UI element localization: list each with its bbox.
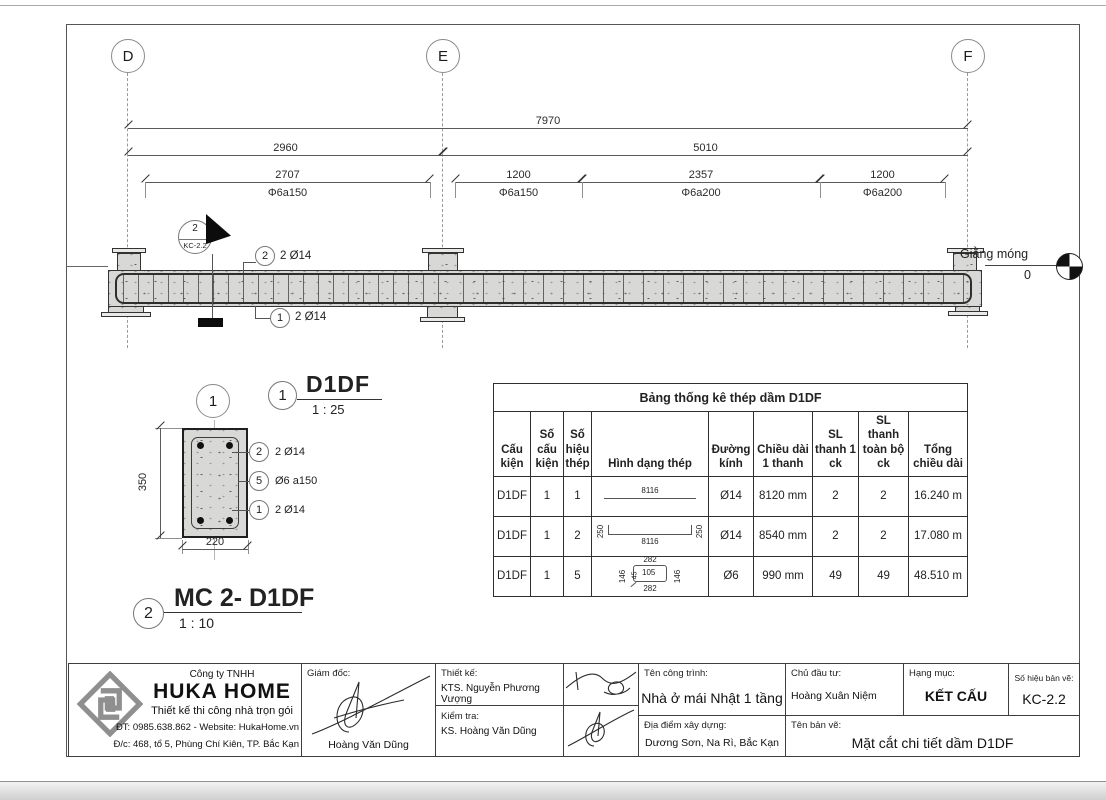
footing-e [420,317,465,322]
foundation-level-line-left [66,266,108,267]
designer-signature-cell [563,663,639,706]
callout-number: 2 [256,446,262,458]
location-cell: Địa điểm xây dựng: Dương Sơn, Na Rì, Bắc… [638,715,786,757]
cell: 48.510 m [909,556,968,596]
cell: 16.240 m [909,476,968,516]
company-cell: Công ty TNHH HUKA HOME Thiết kế thi công… [68,663,302,757]
callout-leader [243,262,256,263]
beam-cross-section [182,428,248,538]
rebar-dot [197,442,204,449]
location-name: Dương Sơn, Na Rì, Bắc Kạn [639,737,785,749]
section-callout-1-label: 2 Ø14 [275,446,305,458]
col-header: Số cấu kiện [531,412,564,477]
level-line [985,265,1057,266]
cell: 8540 mm [754,516,813,556]
section-height-label: 350 [137,473,149,491]
drawing-name-cell: Tên bản vẽ: Mặt cắt chi tiết dầm D1DF [785,715,1080,757]
project-cell: Tên công trình: Nhà ở mái Nhật 1 tầng [638,663,786,716]
detail-title-name-1: D1DF [306,371,370,398]
col-header: Tổng chiều dài [909,412,968,477]
investor-cell: Chủ đầu tư: Hoàng Xuân Niệm [785,663,904,716]
rebar-shape-u-bar: 250 250 8116 [592,516,709,556]
checker-signature [564,706,638,754]
callout-top-label: 2 Ø14 [280,250,311,262]
callout-leader [232,510,249,511]
shape-side-label: 146 [673,570,682,583]
dim-zone-3: 2357 Φ6a200 [582,182,820,183]
ext-line [945,182,946,198]
company-tagline: Thiết kế thi công nhà trọn gói [147,705,297,717]
cell: 17.080 m [909,516,968,556]
cell: 49 [813,556,859,596]
cell: 1 [531,556,564,596]
category-name: KẾT CẤU [904,688,1008,704]
window-bottom-strip [0,782,1106,800]
section-callout-3: 1 [249,500,269,520]
table-title: Bảng thống kê thép dầm D1DF [494,384,968,412]
detail-title-bubble-1: 1 [268,381,297,410]
col-header: Hình dạng thép [592,412,709,477]
section-callout-2: 5 [249,471,269,491]
callout-leader [232,452,249,453]
designer-cell: Thiết kế: KTS. Nguyễn Phương Vượng [435,663,564,706]
detail-title-number: 1 [278,387,286,404]
dim-zone-2: 1200 Φ6a150 [455,182,582,183]
designer-signature [564,664,638,704]
callout-leader [243,262,244,273]
col-header: Số hiệu thép [564,412,592,477]
detail-title-underline [164,612,302,613]
callout-number: 1 [256,504,262,516]
shape-end-label: 250 [695,525,704,538]
location-label: Địa điểm xây dựng: [644,720,726,731]
detail-title-name-2: MC 2- D1DF [174,584,314,613]
table-row: D1DF 1 2 250 250 8116 Ø14 8540 mm 2 2 17… [494,516,968,556]
cell: 2 [813,476,859,516]
cell: Ø6 [709,556,754,596]
drawing-name-value: Mặt cắt chi tiết dầm D1DF [786,735,1079,751]
drawing-name-label: Tên bản vẽ: [791,720,841,731]
dim-zone-4-length: 1200 [820,169,945,181]
table-row: D1DF 1 5 282 146 146 45 105 282 Ø6 [494,556,968,596]
ext-line [155,538,182,539]
col-header: Cấu kiện [494,412,531,477]
bottom-rebar-line [115,282,972,304]
designer-name: KTS. Nguyễn Phương Vượng [441,683,563,705]
callout-number: 5 [256,475,262,487]
shape-length-label: 282 [620,556,680,564]
shape-length-label: 8116 [604,486,696,495]
column-stub-d-top [117,253,141,270]
detail-title-number: 2 [144,605,153,623]
col-header: Chiều dài 1 thanh [754,412,813,477]
dim-span-de-label: 2960 [128,142,443,154]
table-row: D1DF 1 1 8116 Ø14 8120 mm 2 2 16.240 m [494,476,968,516]
dim-zone-3-length: 2357 [582,169,820,181]
checker-signature-cell [563,705,639,757]
cell: Ø14 [709,476,754,516]
checker-name: KS. Hoàng Văn Dũng [441,726,537,737]
footing-f [948,311,988,316]
cell: D1DF [494,556,531,596]
col-header: SL thanh toàn bộ ck [859,412,909,477]
rebar-shape-straight: 8116 [592,476,709,516]
shape-inner-label: 105 [642,568,655,577]
grid-bubble-d: D [111,39,145,73]
level-symbol-icon [1056,253,1083,280]
director-cell: Giám đốc: Hoàng Văn Dũng [301,663,436,757]
director-signature [304,674,434,740]
shape-length-label: 8116 [604,537,696,546]
cell: 2 [859,476,909,516]
detail-title-bubble-2: 2 [133,598,164,629]
shape-hook-label: 45 [631,572,638,580]
level-value: 0 [1024,268,1031,282]
cell: D1DF [494,476,531,516]
footing-d [101,312,151,317]
drawing-sheet: D E F 7970 2960 5010 2707 Φ6a150 1200 Φ6… [0,0,1106,800]
category-cell: Hạng mục: KẾT CẤU [903,663,1009,716]
cell: 2 [859,516,909,556]
callout-bubble-bottom: 1 [270,308,290,328]
section-callout-2-label: Ø6 a150 [275,475,317,487]
company-address: Đ/c: 468, tổ 5, Phùng Chí Kiên, TP. Bắc … [71,739,299,750]
dim-zone-4: 1200 Φ6a200 [820,182,945,183]
dim-zone-1: 2707 Φ6a150 [145,182,430,183]
company-phone: ĐT: 0985.638.862 - Website: HukaHome.vn [71,722,299,733]
detail-title-scale-2: 1 : 10 [179,615,214,631]
ext-line [430,182,431,198]
detail-title-scale-1: 1 : 25 [312,402,345,417]
shape-length-label: 282 [620,584,680,593]
rebar-schedule-table: Bảng thống kê thép dầm D1DF Cấu kiện Số … [493,383,968,597]
grid-label-d: D [123,48,134,65]
investor-label: Chủ đầu tư: [791,668,841,679]
callout-number: 2 [262,250,268,262]
project-name: Nhà ở mái Nhật 1 tầng [639,690,785,706]
cell: 5 [564,556,592,596]
dim-total: 7970 [128,128,968,129]
section-cut-bar [198,318,223,327]
rebar-dot [226,517,233,524]
drawing-number-label: Số hiệu bản vẽ: [1009,673,1079,683]
col-header: Đường kính [709,412,754,477]
dim-section-width: 220 [182,549,248,550]
column-stub-e-top [428,253,458,270]
drawing-number-cell: Số hiệu bản vẽ: KC-2.2 [1008,663,1080,716]
callout-number: 1 [277,312,283,324]
callout-leader [238,481,249,482]
section-callout-1: 2 [249,442,269,462]
callout-leader [255,318,271,319]
dim-zone-2-rebar: Φ6a150 [455,187,582,199]
dim-span-ef-label: 5010 [443,142,968,154]
section-grid-label: 1 [209,393,217,410]
paper-top-edge [0,5,1106,6]
checker-label: Kiểm tra: [441,711,479,722]
project-label: Tên công trình: [644,668,708,679]
callout-bottom-label: 2 Ø14 [295,311,326,323]
cell: 1 [531,476,564,516]
company-name: HUKA HOME [147,680,297,704]
ext-line [455,182,456,198]
dim-span-de: 2960 [128,155,443,156]
dim-section-height [160,428,161,538]
ext-line [820,182,821,198]
cell: 1 [531,516,564,556]
company-type: Công ty TNHH [147,669,297,680]
col-header: SL thanh 1 ck [813,412,859,477]
section-grid-bubble: 1 [196,384,230,418]
callout-leader [255,306,256,318]
column-cap-e [422,248,464,253]
cell: 49 [859,556,909,596]
rebar-dot [197,517,204,524]
rebar-shape-stirrup: 282 146 146 45 105 282 [592,556,709,596]
detail-title-underline [297,399,382,400]
stirrup-loop [191,437,239,529]
rebar-dot [226,442,233,449]
grid-label-f: F [963,48,972,65]
designer-label: Thiết kế: [441,668,477,679]
cell: 2 [813,516,859,556]
dim-zone-2-length: 1200 [455,169,582,181]
cell: 1 [564,476,592,516]
grid-bubble-f: F [951,39,985,73]
grid-label-e: E [438,48,448,65]
cell: 8120 mm [754,476,813,516]
section-cut-line [212,254,213,318]
shape-side-label: 146 [618,570,627,583]
dim-zone-4-rebar: Φ6a200 [820,187,945,199]
beam-elevation [108,270,982,307]
director-name: Hoàng Văn Dũng [302,739,435,751]
section-callout-3-label: 2 Ø14 [275,504,305,516]
cell: 990 mm [754,556,813,596]
dim-total-label: 7970 [128,115,968,127]
dim-zone-3-rebar: Φ6a200 [582,187,820,199]
section-width-label: 220 [182,536,248,548]
grid-bubble-e: E [426,39,460,73]
cell: Ø14 [709,516,754,556]
dim-zone-1-length: 2707 [145,169,430,181]
ext-line [145,182,146,198]
callout-bubble-top: 2 [255,246,275,266]
level-label: Giằng móng [960,247,1028,261]
dim-zone-1-rebar: Φ6a150 [145,187,430,199]
category-label: Hạng mục: [909,668,955,679]
investor-name: Hoàng Xuân Niệm [791,690,877,702]
column-cap-d [112,248,146,253]
dim-span-ef: 5010 [443,155,968,156]
checker-cell: Kiểm tra: KS. Hoàng Văn Dũng [435,705,564,757]
ext-line [582,182,583,198]
cell: 2 [564,516,592,556]
drawing-number-value: KC-2.2 [1009,691,1079,707]
cell: D1DF [494,516,531,556]
